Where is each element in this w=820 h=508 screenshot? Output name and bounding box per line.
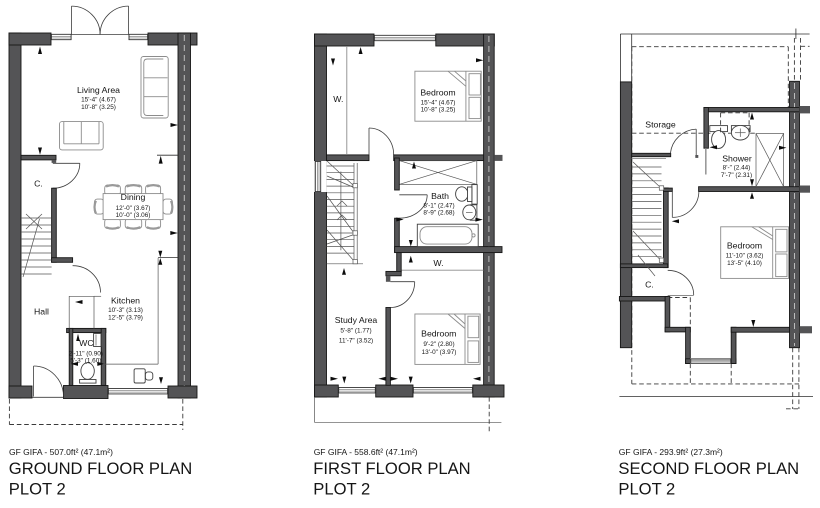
svg-text:11'-7" (3.52): 11'-7" (3.52) [339, 338, 373, 345]
svg-text:PLOT 2: PLOT 2 [9, 480, 66, 499]
svg-text:Shower: Shower [722, 153, 752, 163]
svg-text:2'-11" (0.90): 2'-11" (0.90) [69, 350, 103, 357]
svg-text:5'-3" (1.60): 5'-3" (1.60) [70, 357, 101, 364]
svg-text:Bedroom: Bedroom [420, 88, 455, 98]
svg-text:13'-0" (3.97): 13'-0" (3.97) [422, 349, 457, 356]
svg-text:Bedroom: Bedroom [421, 329, 456, 339]
svg-text:FIRST FLOOR PLAN: FIRST FLOOR PLAN [313, 459, 470, 478]
svg-text:W.: W. [433, 258, 443, 268]
svg-text:11'-10" (3.62): 11'-10" (3.62) [726, 252, 764, 259]
svg-text:C.: C. [34, 179, 43, 189]
svg-text:Storage: Storage [645, 119, 676, 129]
svg-text:PLOT 2: PLOT 2 [313, 480, 370, 499]
svg-text:GF GIFA - 507.0ft² (47.1m²): GF GIFA - 507.0ft² (47.1m²) [9, 447, 113, 457]
svg-text:PLOT 2: PLOT 2 [618, 480, 675, 499]
svg-text:Kitchen: Kitchen [111, 296, 140, 306]
svg-text:GF GIFA - 293.9ft² (27.3m²): GF GIFA - 293.9ft² (27.3m²) [619, 447, 723, 457]
svg-text:15'-4" (4.67): 15'-4" (4.67) [81, 97, 116, 104]
svg-text:15'-4" (4.67): 15'-4" (4.67) [421, 99, 456, 106]
svg-text:Hall: Hall [34, 307, 49, 317]
svg-text:GF GIFA - 558.6ft² (47.1m²): GF GIFA - 558.6ft² (47.1m²) [314, 447, 418, 457]
svg-text:W.: W. [333, 94, 343, 104]
svg-text:WC: WC [79, 338, 93, 348]
svg-text:GROUND FLOOR PLAN: GROUND FLOOR PLAN [9, 459, 192, 478]
svg-text:13'-5" (4.10): 13'-5" (4.10) [727, 260, 762, 267]
svg-text:12'-0" (3.67): 12'-0" (3.67) [116, 205, 151, 212]
svg-text:10'-8" (3.25): 10'-8" (3.25) [421, 107, 456, 114]
svg-text:Bedroom: Bedroom [727, 240, 762, 250]
svg-text:10'-8" (3.25): 10'-8" (3.25) [81, 104, 116, 111]
svg-text:8'-1" (2.47): 8'-1" (2.47) [423, 203, 454, 210]
svg-text:9'-2" (2.80): 9'-2" (2.80) [423, 341, 454, 348]
svg-text:C.: C. [645, 279, 654, 289]
svg-text:Bath: Bath [431, 191, 449, 201]
svg-text:Study Area: Study Area [335, 315, 378, 325]
svg-text:7'-7" (2.31): 7'-7" (2.31) [721, 172, 752, 179]
svg-text:8'-9" (2.68): 8'-9" (2.68) [423, 210, 454, 217]
svg-text:Living Area: Living Area [77, 85, 120, 95]
svg-text:Dining: Dining [121, 192, 146, 202]
svg-text:8'-" (2.44): 8'-" (2.44) [723, 164, 751, 171]
svg-text:SECOND FLOOR PLAN: SECOND FLOOR PLAN [618, 459, 799, 478]
svg-text:10'-3" (3.13): 10'-3" (3.13) [108, 307, 143, 314]
svg-text:5'-8" (1.77): 5'-8" (1.77) [340, 328, 371, 335]
svg-text:12'-5" (3.79): 12'-5" (3.79) [108, 314, 143, 321]
svg-text:10'-0" (3.06): 10'-0" (3.06) [116, 212, 151, 219]
